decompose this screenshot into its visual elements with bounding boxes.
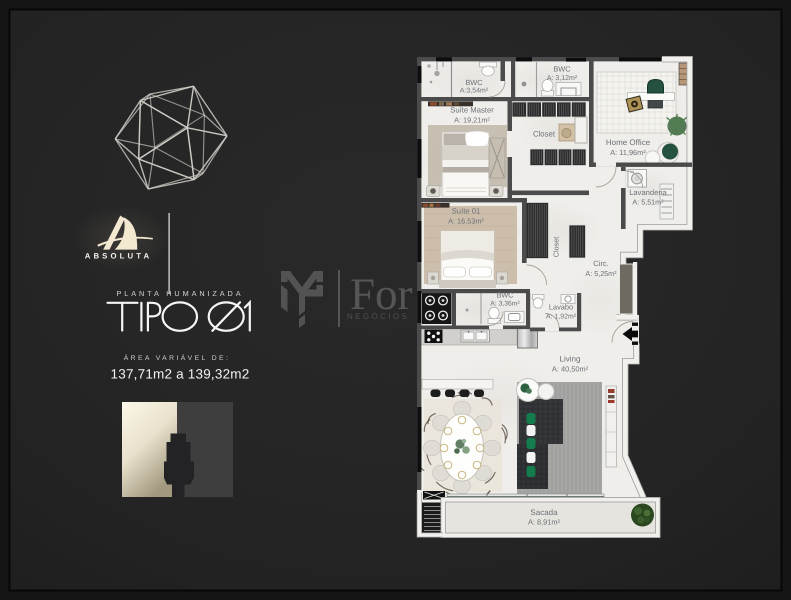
svg-text:137,71m2 a 139,32m2: 137,71m2 a 139,32m2 [111, 367, 250, 382]
svg-text:NEGÓCIOS: NEGÓCIOS [347, 312, 409, 321]
svg-text:BWC: BWC [465, 78, 483, 87]
svg-text:Closet: Closet [533, 130, 556, 139]
svg-text:ÁREA VARIÁVEL DE:: ÁREA VARIÁVEL DE: [124, 354, 231, 362]
svg-text:BWC: BWC [553, 65, 571, 74]
svg-text:ABSOLUTA: ABSOLUTA [85, 252, 153, 261]
svg-text:A: 11,96m²: A: 11,96m² [610, 148, 646, 157]
svg-text:A: 8,91m²: A: 8,91m² [528, 518, 561, 527]
svg-text:Suíte 01: Suíte 01 [452, 207, 481, 216]
svg-text:Sacada: Sacada [530, 508, 558, 517]
svg-text:Living: Living [560, 355, 581, 364]
svg-text:Lavabo: Lavabo [549, 303, 573, 312]
svg-text:A: 40,50m²: A: 40,50m² [552, 365, 589, 374]
svg-text:Closet: Closet [552, 237, 561, 257]
svg-text:Circ.: Circ. [593, 259, 609, 268]
svg-text:A: 16,53m²: A: 16,53m² [448, 217, 484, 226]
svg-text:A: 3,36m²: A: 3,36m² [490, 301, 520, 308]
svg-text:BWC: BWC [497, 291, 514, 300]
svg-text:A: 1,92m²: A: 1,92m² [546, 314, 577, 321]
svg-text:A: 5,51m²: A: 5,51m² [632, 198, 664, 207]
svg-text:PLANTA HUMANIZADA: PLANTA HUMANIZADA [116, 289, 243, 298]
svg-text:A: 3,12m²: A: 3,12m² [547, 75, 578, 82]
svg-text:A:3,54m²: A:3,54m² [460, 88, 489, 95]
svg-text:Home Office: Home Office [606, 138, 651, 147]
svg-text:Lavanderia: Lavanderia [629, 188, 667, 197]
svg-text:Suíte Master: Suíte Master [450, 106, 494, 115]
svg-text:A: 5,25m²: A: 5,25m² [585, 269, 617, 278]
svg-text:A: 19,21m²: A: 19,21m² [454, 116, 490, 125]
